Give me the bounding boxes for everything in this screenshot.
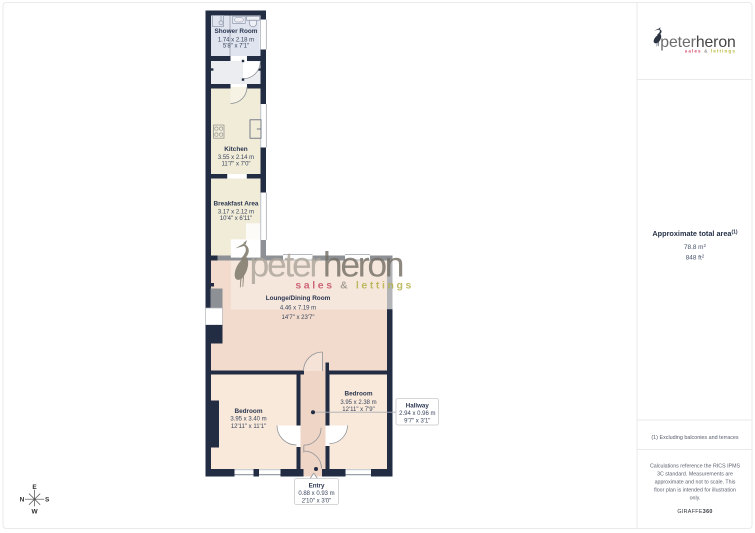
svg-text:Kitchen: Kitchen (224, 146, 248, 153)
svg-text:W: W (32, 509, 39, 516)
svg-text:3.95 x 2.38 m: 3.95 x 2.38 m (340, 400, 376, 406)
svg-text:3.17 x 2.12 m: 3.17 x 2.12 m (218, 210, 254, 216)
svg-text:Entry: Entry (309, 483, 325, 490)
svg-text:E: E (32, 484, 37, 491)
svg-text:Lounge/Dining Room: Lounge/Dining Room (266, 295, 331, 302)
svg-text:9'7" x 3'1": 9'7" x 3'1" (404, 418, 430, 424)
svg-text:Shower Room: Shower Room (215, 28, 258, 35)
svg-text:2.94 x 0.96 m: 2.94 x 0.96 m (399, 411, 435, 417)
svg-text:5'8" x 7'1": 5'8" x 7'1" (223, 44, 249, 50)
svg-text:Bedroom: Bedroom (344, 391, 372, 398)
svg-text:Approximate total area(1): Approximate total area(1) (652, 229, 738, 238)
svg-text:S: S (45, 497, 50, 504)
svg-text:(1) Excluding balconies and te: (1) Excluding balconies and terraces (651, 435, 738, 441)
svg-text:floor plan is intended for ill: floor plan is intended for illustration (654, 488, 736, 494)
svg-text:Bedroom: Bedroom (234, 408, 262, 415)
svg-text:Hallway: Hallway (406, 403, 430, 410)
svg-text:12'11" x 11'1": 12'11" x 11'1" (231, 424, 266, 430)
svg-text:N: N (20, 497, 25, 504)
svg-text:3.95 x 3.40 m: 3.95 x 3.40 m (230, 417, 266, 423)
svg-text:14'7" x 23'7": 14'7" x 23'7" (282, 315, 315, 321)
svg-text:78.8 m2: 78.8 m2 (684, 243, 707, 251)
svg-text:11'7" x 7'0": 11'7" x 7'0" (221, 161, 250, 167)
svg-text:Breakfast Area: Breakfast Area (214, 201, 259, 208)
svg-text:4.46 x 7.19 m: 4.46 x 7.19 m (280, 306, 316, 312)
svg-text:0.88 x 0.93 m: 0.88 x 0.93 m (298, 491, 334, 497)
svg-text:3.55 x 2.14 m: 3.55 x 2.14 m (218, 155, 254, 161)
svg-text:2'10" x 3'0": 2'10" x 3'0" (302, 498, 332, 504)
svg-text:GIRAFFE360: GIRAFFE360 (677, 509, 712, 515)
svg-text:approximate and not to scale.: approximate and not to scale. This (655, 480, 736, 486)
svg-text:1.74 x 2.18 m: 1.74 x 2.18 m (218, 37, 254, 43)
svg-text:sales & lettings: sales & lettings (295, 280, 414, 292)
svg-text:10'4" x 6'11": 10'4" x 6'11" (220, 216, 252, 222)
svg-text:3C standard. Measurements are: 3C standard. Measurements are (657, 472, 733, 478)
svg-text:Calculations reference the RIC: Calculations reference the RICS IPMS (650, 464, 741, 470)
svg-text:only.: only. (690, 496, 701, 502)
svg-text:sales & lettings: sales & lettings (685, 48, 736, 53)
